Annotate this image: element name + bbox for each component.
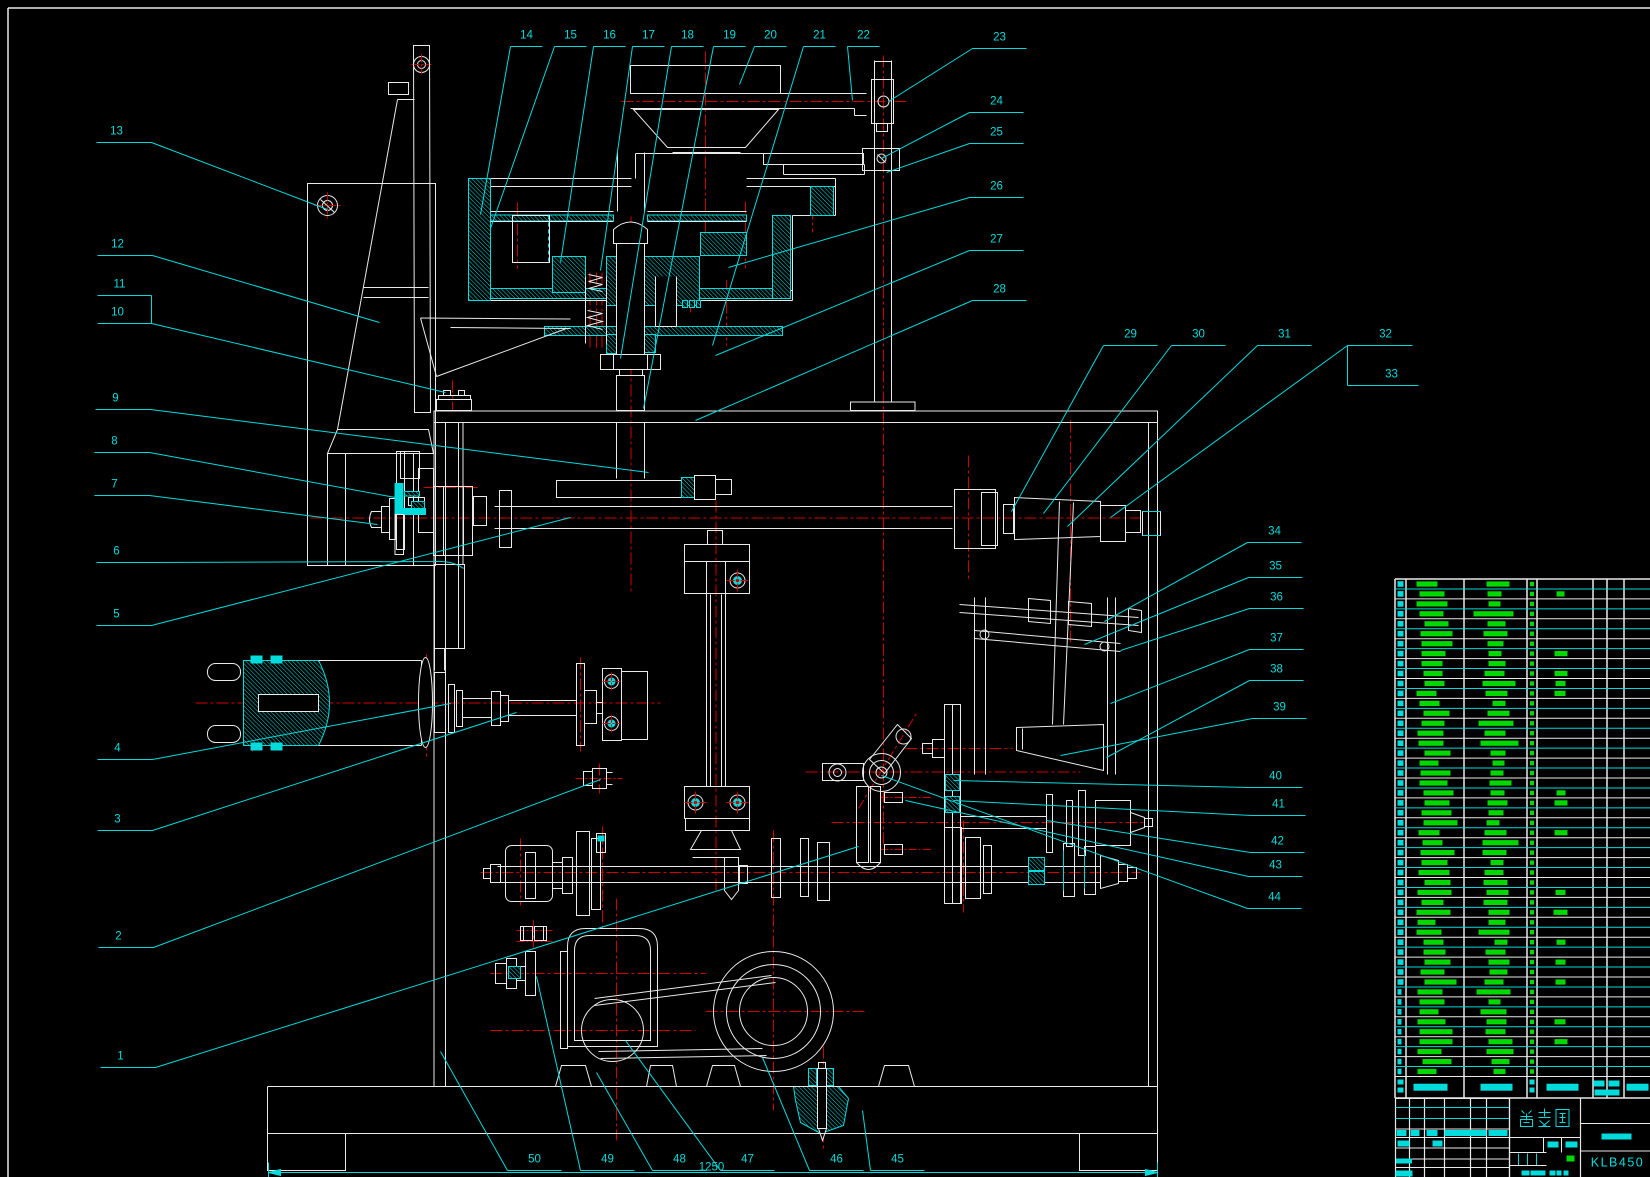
svg-text:30: 30	[1192, 329, 1205, 341]
svg-text:7: 7	[111, 479, 117, 491]
svg-text:43: 43	[1269, 860, 1282, 872]
svg-text:42: 42	[1271, 836, 1284, 848]
svg-text:4: 4	[114, 743, 121, 755]
svg-text:13: 13	[110, 126, 123, 138]
svg-text:10: 10	[111, 307, 124, 319]
svg-text:16: 16	[603, 30, 616, 42]
svg-text:18: 18	[681, 30, 694, 42]
svg-text:1250: 1250	[699, 1162, 725, 1174]
svg-text:45: 45	[891, 1154, 904, 1166]
svg-text:14: 14	[520, 30, 533, 42]
svg-text:50: 50	[528, 1154, 541, 1166]
svg-text:15: 15	[564, 30, 577, 42]
svg-text:49: 49	[601, 1154, 614, 1166]
svg-text:34: 34	[1268, 526, 1281, 538]
svg-text:1: 1	[117, 1051, 123, 1063]
svg-text:26: 26	[990, 181, 1003, 193]
svg-text:12: 12	[111, 239, 124, 251]
svg-text:8: 8	[111, 436, 117, 448]
svg-text:29: 29	[1124, 329, 1137, 341]
svg-text:33: 33	[1385, 369, 1398, 381]
svg-text:KLB450: KLB450	[1591, 1156, 1644, 1170]
svg-text:28: 28	[993, 284, 1006, 296]
svg-text:32: 32	[1379, 329, 1392, 341]
svg-text:23: 23	[993, 32, 1006, 44]
svg-text:11: 11	[114, 279, 126, 291]
svg-text:48: 48	[673, 1154, 686, 1166]
svg-text:17: 17	[642, 30, 655, 42]
svg-text:3: 3	[114, 814, 120, 826]
svg-text:25: 25	[990, 127, 1003, 139]
svg-text:2: 2	[115, 931, 121, 943]
svg-text:35: 35	[1269, 561, 1282, 573]
svg-text:5: 5	[113, 609, 119, 621]
svg-text:36: 36	[1270, 592, 1283, 604]
svg-text:24: 24	[990, 96, 1003, 108]
svg-text:20: 20	[764, 30, 777, 42]
svg-text:31: 31	[1278, 329, 1291, 341]
svg-text:39: 39	[1273, 702, 1286, 714]
svg-text:9: 9	[112, 393, 118, 405]
svg-text:6: 6	[113, 546, 119, 558]
svg-text:44: 44	[1268, 892, 1281, 904]
svg-text:21: 21	[813, 30, 826, 42]
svg-text:40: 40	[1269, 771, 1282, 783]
svg-text:38: 38	[1270, 664, 1283, 676]
svg-text:19: 19	[723, 30, 736, 42]
svg-text:37: 37	[1270, 633, 1283, 645]
svg-text:46: 46	[830, 1154, 843, 1166]
svg-text:41: 41	[1272, 799, 1285, 811]
svg-text:27: 27	[990, 234, 1003, 246]
svg-text:22: 22	[857, 30, 870, 42]
svg-text:47: 47	[741, 1154, 754, 1166]
